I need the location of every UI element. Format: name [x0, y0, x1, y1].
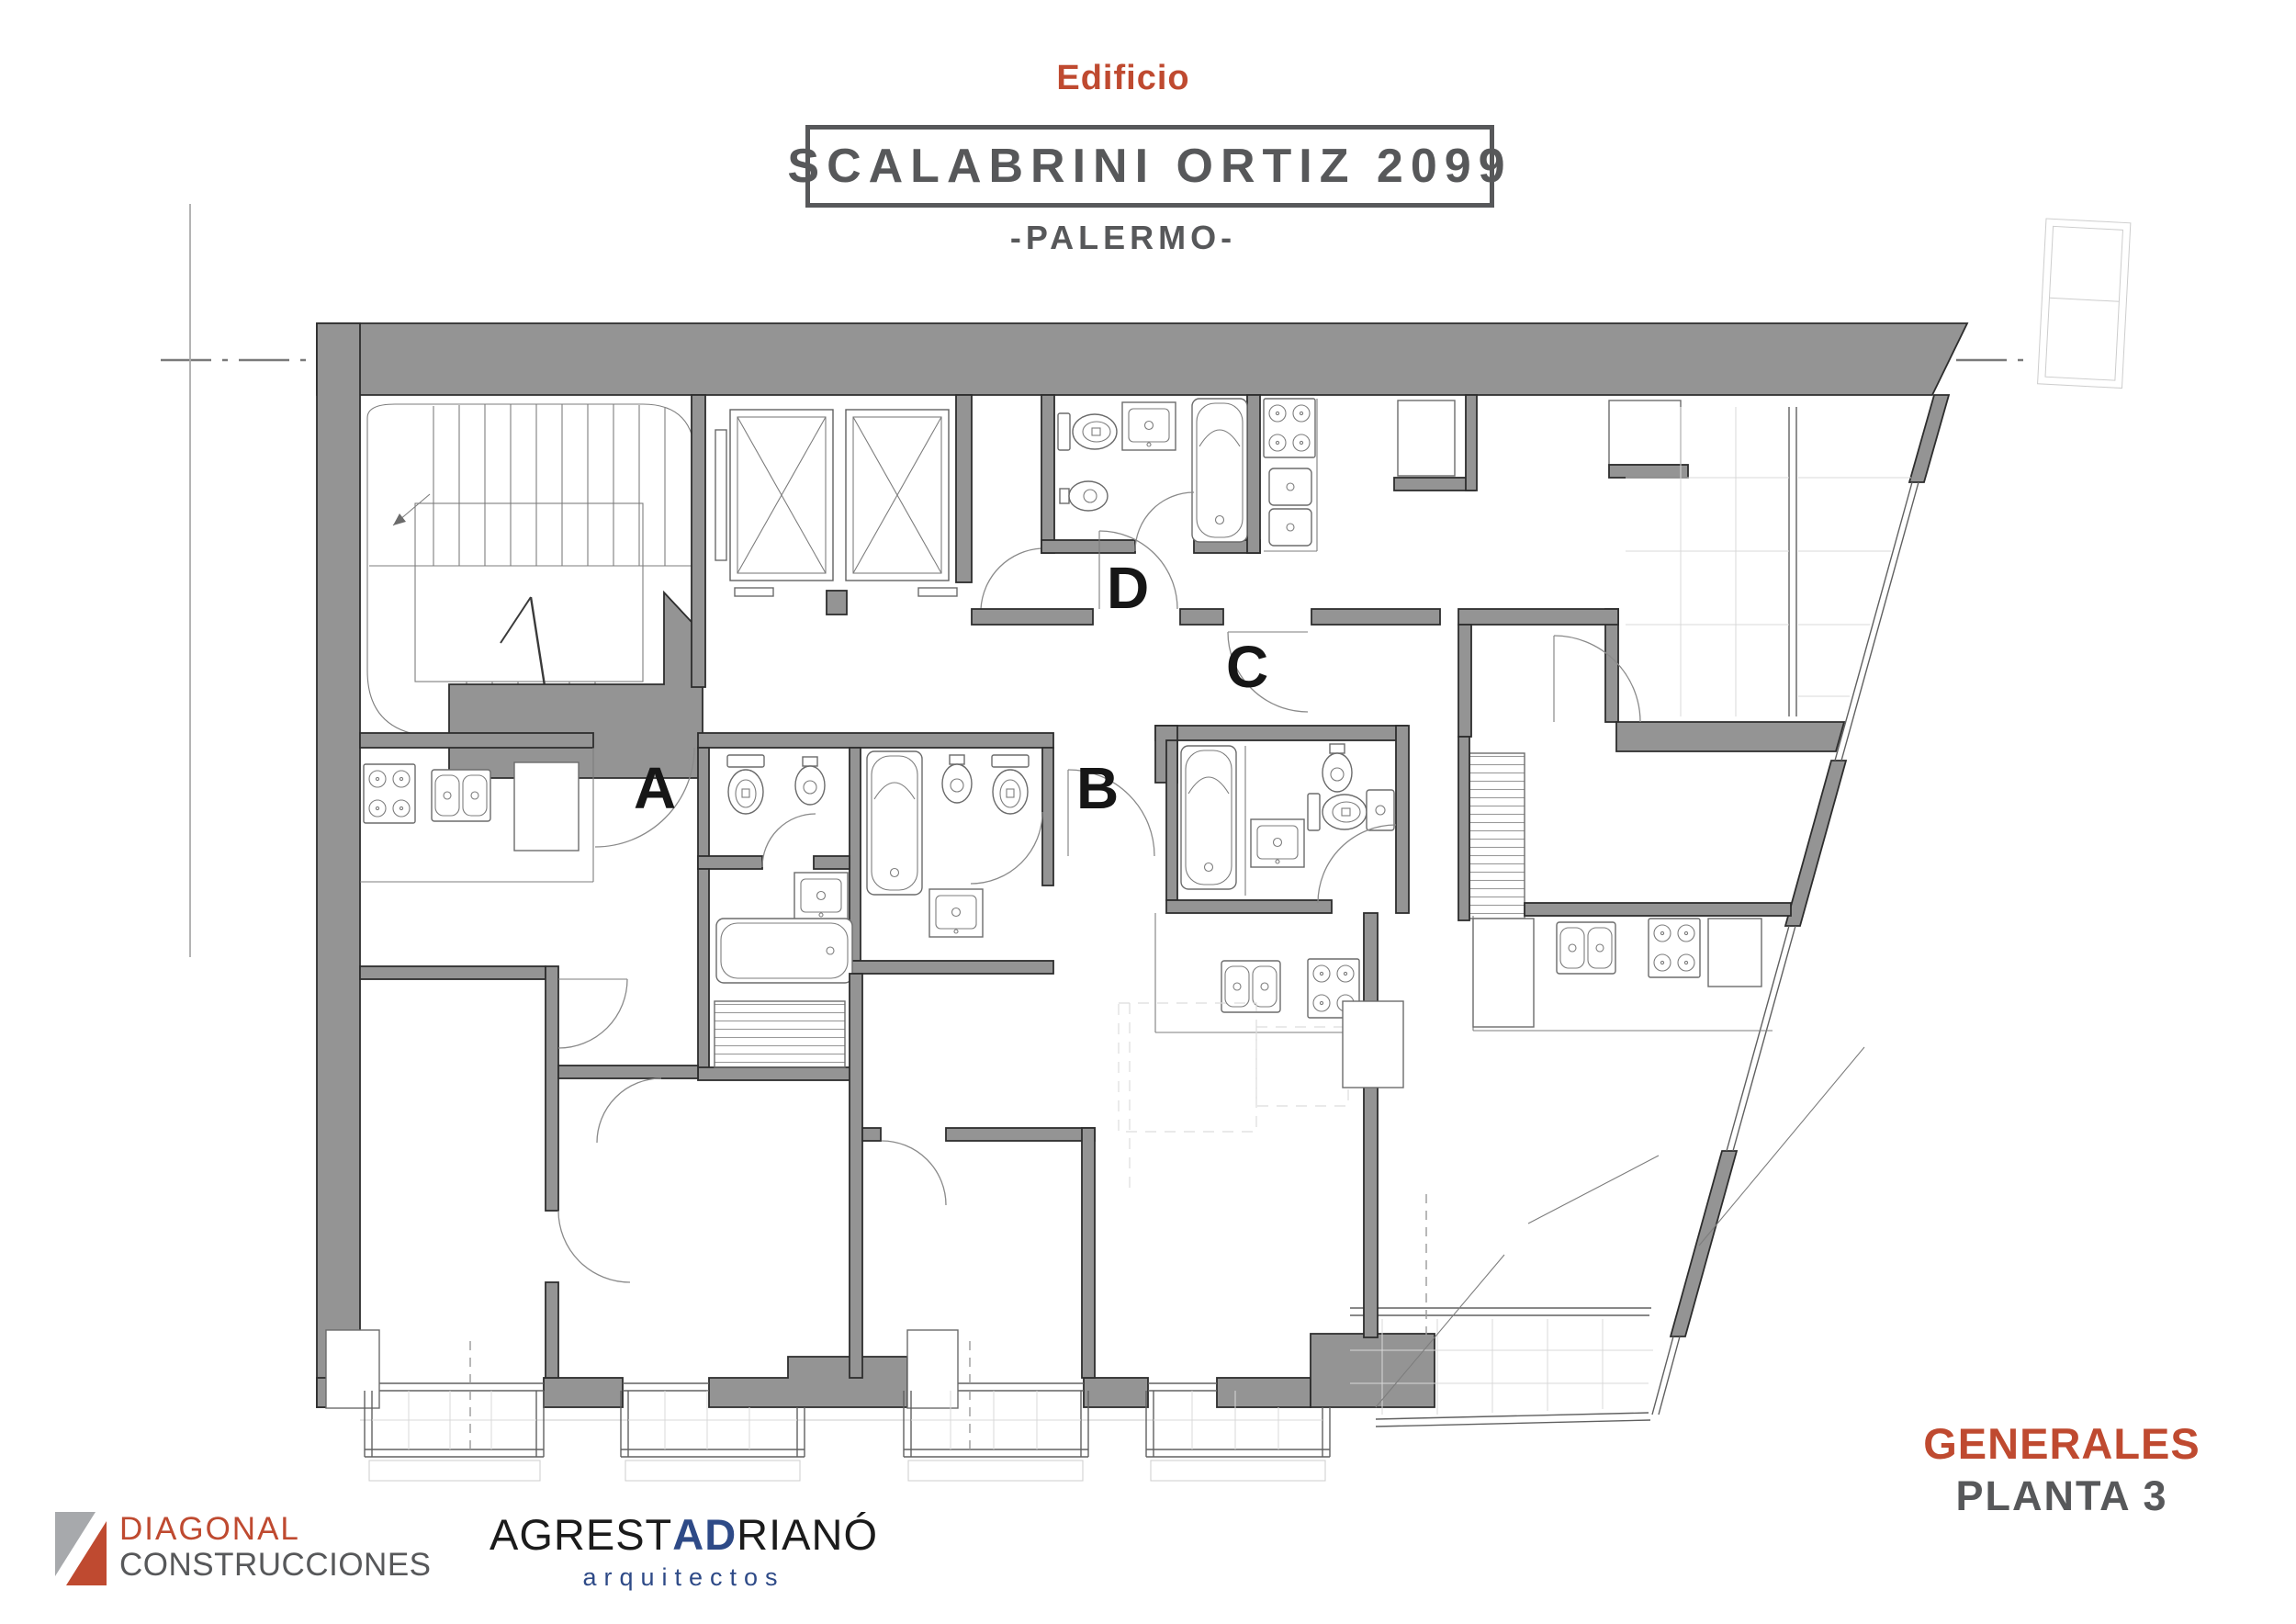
unit-a-label: A	[634, 755, 676, 821]
agrest-adriano-wordmark: AGRESTADRIANÓ	[490, 1512, 878, 1558]
elevators	[715, 395, 972, 615]
unit-d-label: D	[1107, 555, 1149, 621]
hall-door-arc	[981, 548, 1041, 609]
unit-b-bathroom	[1155, 726, 1409, 913]
stair-elevator-divider	[692, 395, 705, 687]
diagonal-logo-name: DIAGONAL	[119, 1512, 432, 1547]
agrest-adriano-logo: AGRESTADRIANÓ arquitectos	[490, 1512, 878, 1592]
plan-sheet: Edificio SCALABRINI ORTIZ 2099 -PALERMO-	[0, 0, 2296, 1624]
living-furniture	[1119, 1001, 1403, 1194]
shared-bathroom	[850, 748, 1053, 974]
riano-part: RIANÓ	[737, 1510, 878, 1559]
sheet-category: GENERALES	[1892, 1418, 2232, 1469]
neighbour-balcony	[2038, 219, 2131, 389]
diagonal-lines	[1376, 1047, 1864, 1407]
sheet-label: GENERALES PLANTA 3	[1892, 1418, 2232, 1520]
top-right-window-box	[1609, 400, 1688, 478]
unit-d-kitchen	[1264, 395, 1477, 551]
unit-a-tub-room	[698, 869, 861, 1080]
sheet-name: PLANTA 3	[1892, 1472, 2232, 1520]
arquitectos-tagline: arquitectos	[490, 1563, 878, 1592]
diagonal-logo: DIAGONAL CONSTRUCCIONES	[55, 1512, 432, 1585]
unit-c-kitchen	[1458, 737, 1791, 1031]
diagonal-logo-subname: CONSTRUCCIONES	[119, 1547, 432, 1584]
agrest-part: AGREST	[490, 1510, 672, 1559]
exterior-walls	[317, 323, 1967, 1415]
unit-b-label: B	[1076, 755, 1119, 821]
balcony-1	[365, 1341, 544, 1481]
floor-plan-drawing: A B C D	[0, 0, 2296, 1624]
unit-c-label: C	[1226, 634, 1268, 700]
ad-part: AD	[672, 1510, 737, 1559]
unit-b-kitchen	[1155, 913, 1378, 1337]
unit-d-bathroom	[1041, 395, 1260, 553]
corridor	[972, 531, 1618, 737]
diagonal-logo-icon	[55, 1512, 107, 1585]
